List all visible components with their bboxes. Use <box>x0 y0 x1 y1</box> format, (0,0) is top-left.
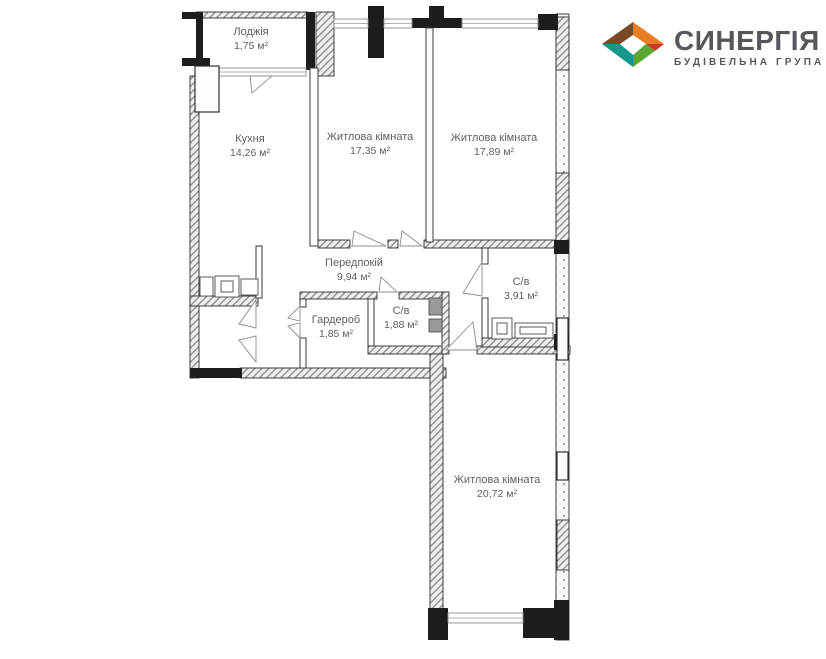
wall-hatched <box>368 346 446 354</box>
brand-logo: СИНЕРГІЯ БУДІВЕЛЬНА ГРУПА <box>601 17 824 73</box>
door-leaf <box>446 322 477 350</box>
room-name: Передпокій <box>325 257 383 270</box>
room-name: Гардероб <box>312 314 360 327</box>
logo-segment-orange <box>633 22 664 44</box>
room-area: 1,75 м² <box>233 40 268 53</box>
wall-column <box>428 608 448 640</box>
room-name: Кухня <box>230 133 270 146</box>
wall-column <box>368 6 384 58</box>
wall-partition <box>300 338 306 368</box>
plan-shapes <box>182 6 570 640</box>
room-label-living-room-1: Житлова кімната 17,35 м² <box>327 131 413 158</box>
brand-logo-text: СИНЕРГІЯ БУДІВЕЛЬНА ГРУПА <box>674 28 824 68</box>
door-leaf <box>239 336 256 362</box>
wall-column <box>523 608 568 638</box>
fixture-dark <box>429 298 442 315</box>
room-name: С/в <box>504 276 538 289</box>
room-label-bathroom: С/в 3,91 м² <box>504 276 538 303</box>
wall-column <box>554 240 569 254</box>
room-label-living-room-3: Житлова кімната 20,72 м² <box>454 474 540 501</box>
room-area: 3,91 м² <box>504 290 538 303</box>
wall-partition <box>482 248 488 264</box>
logo-segment-brown <box>602 22 633 44</box>
wall-hatched <box>190 76 199 378</box>
brand-tagline: БУДІВЕЛЬНА ГРУПА <box>674 57 824 68</box>
wall-column <box>306 12 315 70</box>
wall-hatched <box>196 12 308 18</box>
room-area: 1,85 м² <box>312 328 360 341</box>
room-name: С/в <box>384 305 418 318</box>
door-leaf <box>250 76 272 93</box>
wall-column <box>538 14 558 30</box>
room-name: Житлова кімната <box>451 132 537 145</box>
door-leaf <box>288 306 300 321</box>
wall-column <box>429 6 444 19</box>
room-label-living-room-2: Житлова кімната 17,89 м² <box>451 132 537 159</box>
door-leaf <box>463 262 482 296</box>
wall-hatched <box>424 240 556 248</box>
wall-column <box>182 58 210 66</box>
room-area: 1,88 м² <box>384 319 418 332</box>
wall-hatched <box>318 240 350 248</box>
room-label-kitchen: Кухня 14,26 м² <box>230 133 270 160</box>
wall-partition <box>310 68 318 246</box>
room-label-loggia: Лоджія 1,75 м² <box>233 26 268 53</box>
room-area: 17,89 м² <box>451 146 537 159</box>
fixture <box>520 327 546 334</box>
wall-hatched <box>557 520 569 570</box>
wall-partition <box>300 299 306 307</box>
door-leaf <box>288 323 300 338</box>
wall-partition <box>368 299 374 346</box>
wall-hatched <box>430 354 443 612</box>
wall-column <box>190 368 242 378</box>
fixture <box>497 323 507 334</box>
wall-hatched <box>556 173 569 245</box>
room-area: 14,26 м² <box>230 147 270 160</box>
room-name: Житлова кімната <box>454 474 540 487</box>
wall-hatched <box>240 368 446 378</box>
wall-pier <box>195 66 219 112</box>
wall-hatched <box>300 292 377 299</box>
room-label-wardrobe: Гардероб 1,85 м² <box>312 314 360 341</box>
wall-hatched <box>316 12 334 76</box>
wall-column <box>182 12 196 19</box>
wall-hatched <box>442 292 449 354</box>
wall-partition <box>426 28 433 242</box>
wall-pier <box>557 318 568 360</box>
room-label-hallway: Передпокій 9,94 м² <box>325 257 383 284</box>
logo-segment-teal <box>602 44 633 67</box>
wall-column <box>412 18 462 28</box>
wall-hatched <box>190 296 258 306</box>
brand-name: СИНЕРГІЯ <box>674 28 824 54</box>
door-leaf <box>400 231 422 246</box>
brand-logo-icon <box>601 17 665 73</box>
fixture-dark <box>429 319 442 332</box>
room-name: Житлова кімната <box>327 131 413 144</box>
fixture <box>241 279 258 295</box>
fixture <box>221 281 233 292</box>
wall-partition <box>482 298 488 338</box>
wall-column <box>196 12 203 58</box>
room-name: Лоджія <box>233 26 268 39</box>
fixture <box>200 277 213 296</box>
wall-hatched <box>388 240 398 248</box>
page: Лоджія 1,75 м² Кухня 14,26 м² Житлова кі… <box>0 0 826 659</box>
room-area: 20,72 м² <box>454 488 540 501</box>
room-area: 9,94 м² <box>325 271 383 284</box>
door-leaf <box>352 231 386 246</box>
room-label-wc: С/в 1,88 м² <box>384 305 418 332</box>
wall-pier <box>557 452 568 480</box>
room-area: 17,35 м² <box>327 145 413 158</box>
